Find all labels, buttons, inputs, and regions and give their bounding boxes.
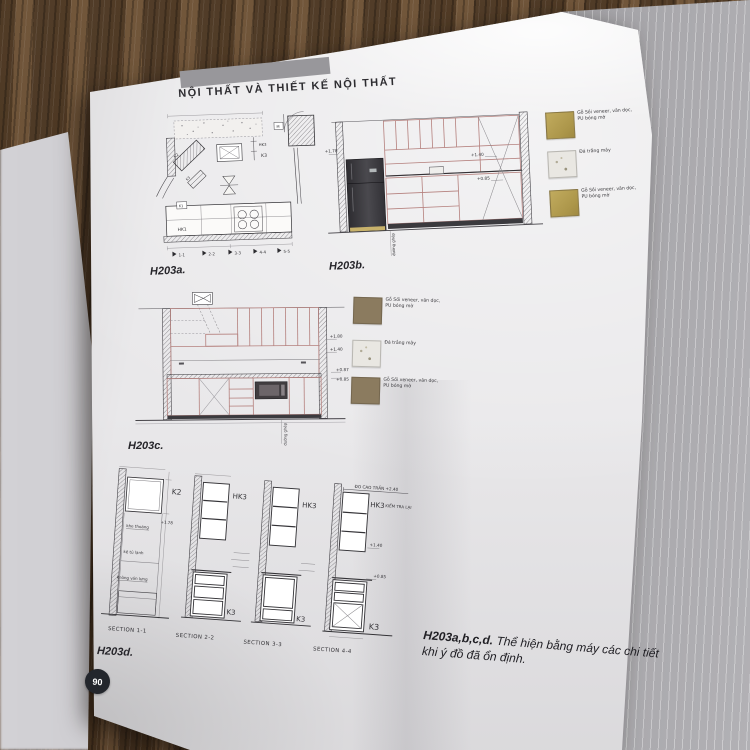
material-label-wood: Gỗ Sồi veneer, vân dọc, PU bóng mờ (383, 378, 441, 391)
plan-tag-m: M (276, 125, 279, 129)
material-label-stone: Đá trắng mây (384, 341, 442, 348)
marker-5-5: 5-5 (283, 249, 290, 254)
section-tag-k3: K3 (226, 608, 236, 617)
section-tag-k3: K3 (369, 622, 380, 632)
figure-c-label: H203c. (128, 440, 163, 452)
elevation-c-dim-180: +1.80 (330, 334, 343, 339)
section-dim-140: +1.40 (369, 542, 382, 548)
material-label-wood: Gỗ Sồi veneer, vân dọc, PU bóng mờ (385, 298, 443, 311)
section-tag-hk3: HK3 (232, 492, 247, 501)
section-3-3-drawing: HK3 K3 SECTION 3-3 (243, 480, 320, 650)
section-1-1-label: SECTION 1-1 (108, 626, 147, 635)
marker-1-1: 1-1 (178, 252, 185, 257)
legend-row: Gỗ Sồi veneer, vân dọc, PU bóng mờ (351, 377, 448, 407)
elevation-c-vertical-note: đường ghép (282, 422, 287, 445)
legend-row: Gỗ Sồi veneer, vân dọc, PU bóng mờ (545, 108, 642, 140)
marker-3-3: 3-3 (234, 250, 241, 255)
section-2-2-drawing: HK3 K3 SECTION 2-2 (176, 473, 255, 643)
note-khong-van-lung: không ván lưng (117, 575, 149, 582)
material-swatch-stone (547, 150, 577, 178)
note-ke-tu-lanh: kệ tủ lạnh (123, 549, 144, 555)
figure-c-kitchen-elevation: +1.80 +1.40 +0.87 +0.85 đường ghép (130, 285, 356, 455)
legend-row: Gỗ Sồi veneer, vân dọc, PU bóng mờ (549, 185, 646, 217)
note-do-cao-tran: ĐO CAO TRẦN +2.40 (354, 484, 398, 492)
section-tag-k2: K2 (171, 487, 182, 497)
plan-tag-k1: K1 (179, 204, 184, 208)
elevation-b-dim-140: +1.40 (471, 152, 484, 158)
material-legend-c: Gỗ Sồi veneer, vân dọc, PU bóng mờ Đá tr… (350, 297, 449, 415)
page-content: NỘI THẤT VÀ THIẾT KẾ NỘI THẤT (0, 0, 750, 750)
material-label-wood: Gỗ Sồi veneer, vân dọc, PU bóng mờ (577, 108, 636, 122)
section-dim-085: +0.85 (373, 573, 386, 579)
book-photo: NỘI THẤT VÀ THIẾT KẾ NỘI THẤT (0, 0, 750, 750)
section-1-1-drawing: K2 +1.78 khe thoáng kệ tủ lạnh không ván… (100, 466, 183, 637)
figure-a-label: H203a. (150, 264, 186, 278)
figure-a-kitchen-plan: K2 K3 HK3 K3 M (137, 103, 327, 261)
page-number: 90 (92, 676, 103, 687)
elevation-c-dim-087: +0.87 (336, 367, 349, 372)
material-label-stone: Đá trắng mây (579, 147, 637, 156)
section-dim-178: +1.78 (160, 519, 173, 525)
plan-section-markers: 1-1 2-2 3-3 4-4 5-5 (172, 248, 290, 258)
section-tag-hk3: HK3 (302, 501, 317, 510)
marker-4-4: 4-4 (259, 249, 266, 254)
figure-b-label: H203b. (329, 259, 366, 273)
figure-caption: H203a,b,c,d. Thể hiện bằng máy các chi t… (421, 627, 661, 678)
material-swatch-wood (351, 377, 381, 405)
material-swatch-gold (545, 111, 575, 139)
marker-2-2: 2-2 (208, 251, 215, 256)
figure-b-kitchen-elevation: +1.78 (323, 99, 544, 260)
material-swatch-wood (353, 297, 383, 325)
figure-d-cabinet-sections: K2 +1.78 khe thoáng kệ tủ lạnh không ván… (91, 461, 413, 660)
section-4-4-label: SECTION 4-4 (313, 646, 352, 655)
plan-tag-k3-small: K3 (185, 176, 191, 182)
plan-tag-hk1: HK1 (178, 227, 187, 233)
legend-row: Đá trắng mây (547, 147, 644, 179)
section-tag-hk3: HK3 (370, 501, 385, 510)
elevation-b-dim-178: +1.78 (325, 148, 338, 154)
legend-row: Gỗ Sồi veneer, vân dọc, PU bóng mờ (353, 297, 450, 327)
section-tag-k3: K3 (296, 615, 306, 624)
section-4-4-drawing: ĐO CAO TRẦN +2.40 HK3 KIỂM TRA LẠI +1.40… (313, 482, 413, 659)
material-swatch-gold (549, 189, 579, 217)
plan-tag-hk3: HK3 (259, 142, 268, 147)
material-label-wood: Gỗ Sồi veneer, vân dọc, PU bóng mờ (581, 186, 640, 200)
elevation-b-dim-085: +0.85 (477, 176, 490, 182)
figure-d-label: H203d. (97, 645, 134, 659)
section-3-3-label: SECTION 3-3 (243, 640, 282, 649)
elevation-c-dim-140: +1.40 (330, 347, 343, 352)
material-legend-b: Gỗ Sồi veneer, vân dọc, PU bóng mờ Đá tr… (545, 108, 647, 227)
note-kiem-tra-lai: KIỂM TRA LẠI (385, 503, 412, 510)
plan-tag-k3: K3 (261, 153, 267, 159)
page-number-badge: 90 (84, 668, 111, 695)
material-swatch-stone (352, 340, 382, 368)
section-2-2-label: SECTION 2-2 (176, 633, 215, 642)
elevation-c-dim-085: +0.85 (336, 377, 349, 382)
legend-row: Đá trắng mây (352, 340, 449, 370)
